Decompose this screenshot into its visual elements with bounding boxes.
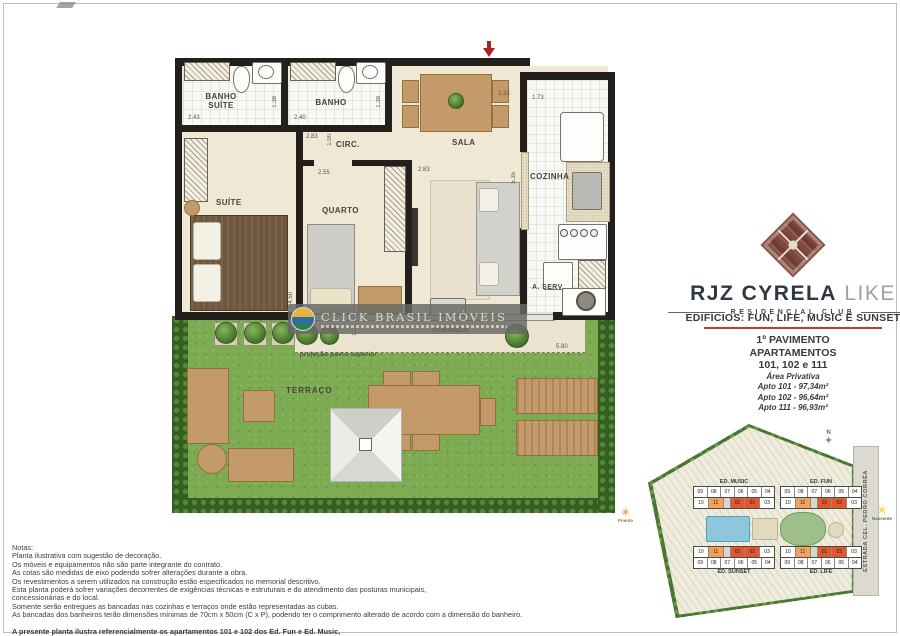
unit-08: 08 [708,558,722,568]
brand-name-secondary: LIKE [844,282,896,305]
hedge-right [598,314,615,512]
building-label: ED. MUSIC [693,479,775,486]
unit-09: 09 [781,487,795,497]
unit-10: 10 [694,498,709,508]
unit-10: 10 [694,547,709,557]
building-label: ED. FUN [780,479,862,486]
dim-quarto-opening: 2.55 [318,170,330,176]
apartments-numbers: 101, 102 e 111 [668,359,900,372]
sink-basin [258,65,274,79]
suite-label: SUÍTE [216,198,242,207]
entry-arrow-icon [483,48,495,57]
brand-name: RJZ CYRELA LIKE [668,282,900,306]
compass-star-icon: ✦ [824,436,833,446]
watermark: CLICK BRASIL IMÓVEIS [288,304,527,334]
unit-02: 02 [832,547,847,557]
unit-04: 04 [849,487,862,497]
unit-02: 02 [745,498,760,508]
terraco-label: TERRAÇO [286,386,333,395]
unit-03: 03 [847,498,861,508]
dining-chair [402,105,419,128]
garden-sofa [187,368,229,444]
projection-label: projeção pavto superior [300,351,377,358]
lagoon-pool [780,512,826,546]
wall-suite-right [296,125,303,320]
fountain [828,522,844,538]
brand-name-primary: RJZ CYRELA [690,282,837,305]
unit-06: 06 [735,558,749,568]
rjz-cyrela-logo-icon [760,212,825,277]
dim-cozinha-w: 1.73 [532,95,544,101]
note-line: As bancadas dos banheiros terão dimensõe… [12,611,632,619]
unit-07: 07 [808,558,822,568]
buildings-line: EDIFÍCIOS: FUN, LIFE, MUSIC E SUNSET [668,312,900,324]
unit-05: 05 [748,487,762,497]
unit-02: 02 [832,498,847,508]
gazebo-center [359,438,372,451]
sink-basin [362,65,378,79]
dim-sala-depth: 5.35 [511,172,517,184]
dim-sala-entry-w: 3.33 [498,91,510,97]
notes-bold-lines: A presente planta ilustra referencialmen… [12,628,632,636]
bush [244,322,266,344]
sun-lounger [516,378,598,414]
unit-11: 11 [709,547,724,557]
sun-west-label: Poente [618,518,633,523]
unit-01: 01 [731,547,746,557]
watermark-logo-icon [291,307,315,331]
sofa-pillow [479,262,499,286]
unit-09: 09 [694,558,708,568]
pool-deck [752,518,778,540]
area-apto-102: Apto 102 - 96,64m² [668,393,900,404]
garden-side-table [243,390,275,422]
fridge [560,112,604,162]
unit-row: 090807060504 [694,557,774,568]
stove [558,224,607,260]
stair-block [724,498,731,508]
site-map: ESTRADA CEL. PEDRO CORRÊA ED. MUSIC09080… [648,424,900,620]
note-line: Esta planta poderá sofrer variações deco… [12,586,632,594]
unit-04: 04 [762,487,775,497]
wall-bottom-suite [175,312,303,320]
building-ed-life: ED. LIFE1011010203090807060504 [780,546,862,576]
unit-06: 06 [822,487,836,497]
unit-03: 03 [847,547,861,557]
bush [215,322,237,344]
wall-left [175,58,182,320]
unit-row: 090807060504 [781,487,861,497]
stair-block [811,498,818,508]
service-shaft [578,260,606,290]
unit-05: 05 [835,487,849,497]
brand-block: RJZ CYRELA LIKE RESIDENCIAL CLUB [668,222,900,316]
sun-lounger [516,420,598,456]
watermark-subtitle [321,325,507,328]
unit-10: 10 [781,547,796,557]
dim-sala-w: 2.83 [418,167,430,173]
unit-07: 07 [808,487,822,497]
area-apto-111: Apto 111 - 96,93m² [668,403,900,414]
unit-09: 09 [694,487,708,497]
dim-circ-d: 1.00 [327,134,333,146]
toilet [338,66,355,93]
wall-quarto-sala-divider [405,160,412,320]
nightstand [184,200,200,216]
unit-row: 1011010203 [694,497,774,508]
corner-mark [56,2,75,8]
floorplan-page: 1.03 5.80 VARANDA projeção pavto superio… [0,0,900,636]
wall-baths-bottom [182,125,392,132]
notes-block: Notas: Planta ilustrativa com sugestão d… [12,544,632,636]
bed-pillow [193,222,221,260]
quarto-label: QUARTO [322,206,359,215]
hedge-left [172,316,188,512]
area-apto-101: Apto 101 - 97,34m² [668,382,900,393]
notes-lines: Planta ilustrativa com sugestão de decor… [12,552,632,619]
dim-banho-suite-w: 2.43 [188,115,200,121]
banho-suite-label: BANHO SUÍTE [198,92,244,110]
unit-row: 090807060504 [694,487,774,497]
sun-east-icon: ✳ [872,506,892,516]
quarto-closet [384,166,406,252]
compass: N ✦ [824,430,833,446]
garden-round-table [197,444,227,474]
unit-08: 08 [795,558,809,568]
dim-banho-w: 2.40 [294,115,306,121]
wall-kitchen-left-a [520,80,527,152]
cozinha-label: COZINHA [530,172,569,181]
bed-pillow [193,264,221,302]
pool [706,516,750,542]
unit-07: 07 [721,487,735,497]
unit-09: 09 [781,558,795,568]
sun-east-label: Nascente [872,516,892,521]
sala-label: SALA [452,138,475,147]
unit-05: 05 [748,558,762,568]
sofa-pillow [479,188,499,212]
unit-08: 08 [708,487,722,497]
road-label: ESTRADA CEL. PEDRO CORRÊA [863,470,869,572]
unit-row: 1011010203 [694,547,774,557]
dim-suite-depth: 4.50 [288,292,294,304]
building-label: ED. LIFE [780,569,862,576]
garden-bench [228,448,294,482]
unit-06: 06 [822,558,836,568]
circ-label: CIRC. [336,140,360,149]
unit-11: 11 [796,547,811,557]
hedge-bottom [172,498,615,513]
unit-02: 02 [745,547,760,557]
dining-chair [402,80,419,103]
entry-arrow-stem [487,41,491,48]
unit-03: 03 [760,498,774,508]
dining-chair [492,105,509,128]
apartments-label: APARTAMENTOS [668,347,900,360]
unit-10: 10 [781,498,796,508]
table-centerpiece-plant [448,93,464,109]
floor-line: 1º PAVIMENTO [668,334,900,347]
unit-row: 090807060504 [781,557,861,568]
dining-chair [412,434,440,451]
shower-box [184,62,230,81]
unit-07: 07 [721,558,735,568]
unit-11: 11 [796,498,811,508]
building-ed-sunset: ED. SUNSET1011010203090807060504 [693,546,775,576]
building-ed-fun: ED. FUN0908070605041011010203 [780,479,862,509]
watermark-title: CLICK BRASIL IMÓVEIS [321,310,507,324]
dim-circ-w: 2.83 [306,134,318,140]
wall-quarto-top-a [296,160,314,166]
dining-chair [480,398,496,426]
tv-panel [412,208,418,266]
unit-11: 11 [709,498,724,508]
unit-04: 04 [849,558,862,568]
suite-closet [184,138,208,202]
dim-banho-d: 1.38 [376,96,382,108]
watermark-text-block: CLICK BRASIL IMÓVEIS [321,310,507,328]
red-divider [704,327,882,329]
area-title: Área Privativa [668,372,900,383]
shower-box [290,62,336,81]
banho-label: BANHO [308,98,354,107]
unit-03: 03 [760,547,774,557]
unit-06: 06 [735,487,749,497]
info-block: EDIFÍCIOS: FUN, LIFE, MUSIC E SUNSET 1º … [668,312,900,414]
wall-top-kitchen [520,72,615,80]
building-ed-music: ED. MUSIC0908070605041011010203 [693,479,775,509]
sun-east: ✳ Nascente [872,506,892,521]
unit-05: 05 [835,558,849,568]
sun-west: ✳ Poente [618,508,633,523]
kitchen-sink [572,172,602,210]
wall-bath-divider-2 [385,58,392,132]
unit-row: 1011010203 [781,547,861,557]
stair-block [724,547,731,557]
stair-block [811,547,818,557]
kitchen-pass-counter [521,152,529,230]
dim-varanda-width: 5.80 [556,344,568,350]
a-serv-label: A. SERV. [532,284,564,291]
unit-04: 04 [762,558,775,568]
unit-row: 1011010203 [781,497,861,508]
unit-08: 08 [795,487,809,497]
building-label: ED. SUNSET [693,569,775,576]
unit-01: 01 [731,498,746,508]
washer-door [576,291,596,311]
sun-west-icon: ✳ [618,508,633,518]
toilet [233,66,250,93]
dim-banho-suite-d: 1.38 [272,96,278,108]
wall-bath-divider-1 [281,58,288,132]
unit-01: 01 [818,498,833,508]
unit-01: 01 [818,547,833,557]
